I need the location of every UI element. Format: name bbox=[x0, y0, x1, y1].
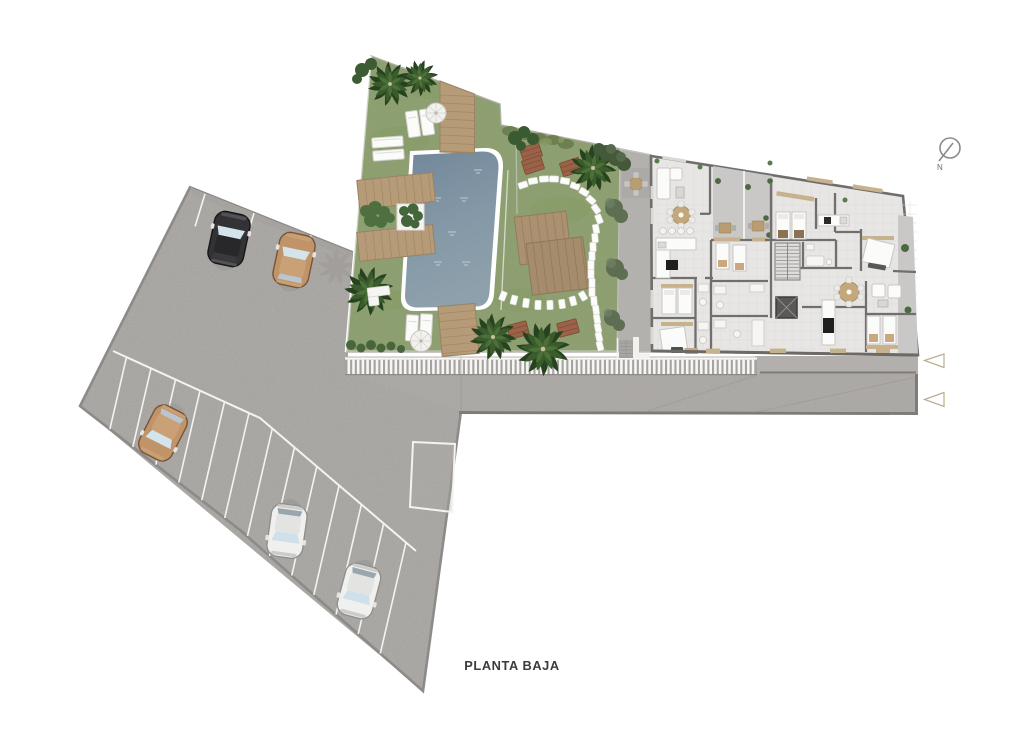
svg-text:N: N bbox=[937, 163, 943, 172]
svg-text:PLANTA BAJA: PLANTA BAJA bbox=[464, 658, 559, 673]
